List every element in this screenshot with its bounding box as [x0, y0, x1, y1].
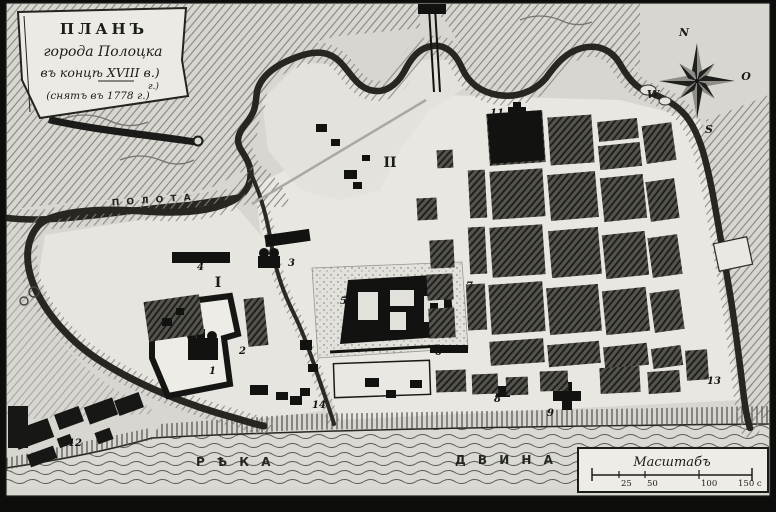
marker-14: 14: [312, 400, 326, 411]
city-block: [488, 281, 545, 335]
city-block: [647, 234, 682, 278]
scale-tick-150: 150 с: [738, 479, 762, 489]
cartouche-century-line: въ концѣ XVIII в.): [40, 65, 159, 80]
city-block: [547, 341, 601, 367]
city-block: [489, 168, 545, 220]
scale-tick-100: 100: [701, 479, 717, 489]
city-block: [429, 239, 454, 268]
city-block: [547, 115, 594, 166]
city-block: [540, 371, 569, 392]
city-block: [602, 287, 650, 335]
scale-bar: Масштабъ 25 50 100 150 с: [578, 448, 768, 492]
building: [176, 308, 184, 315]
city-block: [436, 369, 467, 392]
scanned-map-page: П О Л О Т А Р Ѣ К А Д В И Н А I II 1 2 3…: [0, 0, 776, 512]
marker-7: 7: [466, 281, 473, 292]
city-block: [426, 273, 453, 300]
city-block: [598, 142, 642, 170]
city-block: [468, 170, 487, 219]
building: [344, 170, 357, 179]
building: [331, 139, 340, 146]
marker-8: 8: [494, 394, 501, 405]
marker-11: 11: [490, 108, 504, 119]
city-block: [489, 224, 545, 278]
marker-3: 3: [288, 258, 295, 269]
city-block: [603, 343, 649, 369]
building: [386, 390, 396, 398]
cartouche-title: ПЛАНЪ: [60, 20, 148, 38]
river-label-dvina-word1: Р Ѣ К А: [196, 455, 275, 469]
city-block: [548, 227, 602, 278]
building: [290, 396, 302, 405]
building: [418, 4, 446, 14]
district-label-1: I: [215, 275, 222, 291]
building: [365, 378, 379, 387]
city-block: [506, 377, 529, 396]
city-block: [642, 122, 677, 164]
city-block: [645, 178, 679, 222]
marker-12: 12: [68, 438, 82, 449]
walled-yard: [333, 360, 430, 397]
city-block: [685, 349, 709, 380]
city-block: [649, 289, 684, 333]
marker-6: 6: [435, 347, 442, 358]
building: [276, 392, 288, 400]
city-block: [489, 338, 545, 366]
marker-2: 2: [238, 346, 246, 357]
building: [162, 318, 172, 326]
city-block: [546, 284, 602, 335]
marker-4: 4: [197, 262, 204, 273]
building: [353, 182, 362, 189]
scale-tick-50: 50: [647, 479, 658, 489]
marker-5: 5: [340, 296, 347, 307]
left-bank-building: [8, 406, 28, 448]
city-block: [647, 370, 680, 394]
building: [250, 385, 268, 395]
marker-13: 13: [707, 376, 721, 387]
city-block: [651, 345, 683, 369]
marker-9: 9: [547, 408, 554, 419]
city-block: [597, 118, 639, 142]
building: [410, 380, 422, 388]
compass-north-label: N: [678, 26, 690, 39]
cartouche-survey-year: (снятъ въ 1778 г.): [46, 90, 149, 102]
building: [308, 364, 318, 372]
compass-south-label: S: [705, 123, 713, 136]
building: [300, 340, 312, 350]
compass-west-label: W: [647, 88, 661, 101]
scale-title: Масштабъ: [632, 455, 711, 470]
city-block: [602, 231, 649, 279]
building: [362, 155, 370, 161]
city-block: [547, 171, 599, 221]
river-label-dvina-word2: Д В И Н А: [455, 453, 557, 467]
river-island: [659, 97, 671, 105]
city-block: [416, 197, 437, 220]
cartouche-subtitle: города Полоцка: [43, 44, 162, 60]
scale-tick-25: 25: [621, 479, 632, 489]
cartouche-century-suffix: г.): [148, 81, 159, 92]
city-block: [600, 174, 647, 222]
city-block: [599, 366, 640, 394]
district-label-2: II: [383, 155, 396, 171]
city-block: [437, 150, 454, 169]
marker-1: 1: [209, 366, 216, 377]
city-block: [143, 294, 204, 341]
building: [316, 124, 327, 132]
building: [300, 388, 310, 396]
map-canvas: П О Л О Т А Р Ѣ К А Д В И Н А I II 1 2 3…: [0, 0, 776, 512]
city-block: [472, 374, 499, 395]
city-block: [468, 227, 487, 275]
city-block: [428, 307, 456, 338]
compass-east-label: O: [741, 70, 751, 83]
